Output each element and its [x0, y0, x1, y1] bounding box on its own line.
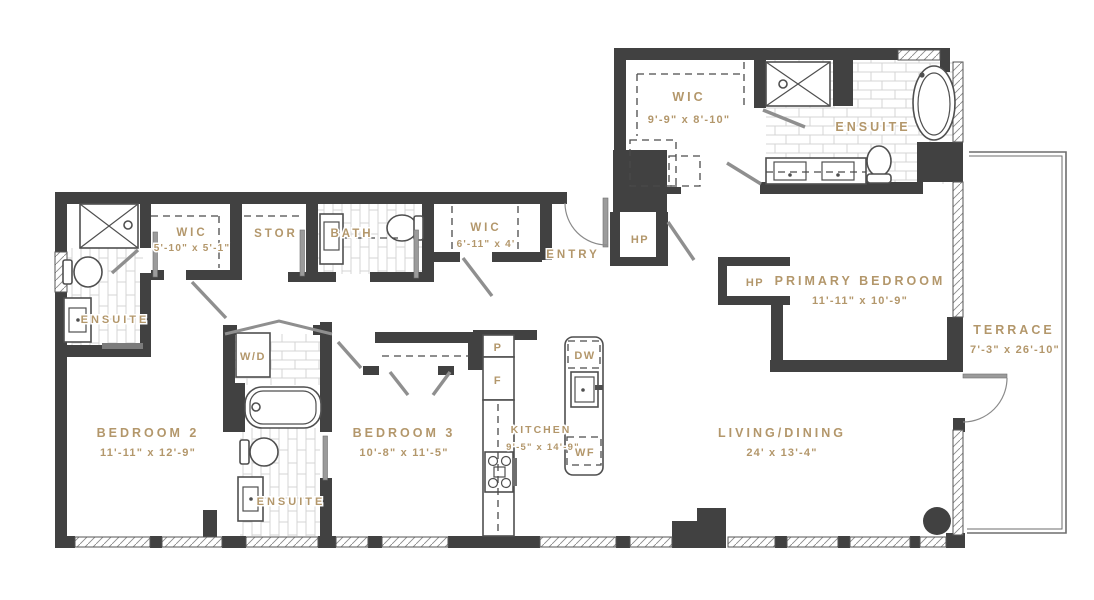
structural-column [923, 507, 951, 535]
window [382, 537, 448, 547]
bedroom3-closet-door [390, 372, 408, 395]
bathtub-icon [913, 66, 955, 140]
room-label-wic-entry: WIC [470, 222, 501, 234]
window [953, 182, 963, 317]
window [75, 537, 150, 547]
room-label-hp-bedroom: HP [746, 277, 764, 289]
room-label-terrace: TERRACE [973, 323, 1054, 337]
room-label-bedroom3: BEDROOM 3 [353, 426, 456, 440]
room-label-kitchen: KITCHEN [511, 424, 572, 436]
room-label-wic-hall: WIC [176, 227, 207, 239]
window [850, 537, 910, 547]
room-label-left-ensuite: ENSUITE [81, 314, 150, 326]
room-label-laundry: W/D [240, 351, 266, 363]
floor-plan-page: WIC 9'-9" x 8'-10" ENSUITE WIC 5'-10" x … [0, 0, 1094, 600]
window [787, 537, 838, 547]
room-dims-wic-primary: 9'-9" x 8'-10" [648, 114, 731, 126]
bathtub-icon [245, 387, 321, 428]
room-label-primary-bedroom: PRIMARY BEDROOM [775, 274, 946, 288]
room-label-hp-entry: HP [631, 234, 649, 246]
terrace-outline [967, 152, 1066, 533]
window [540, 537, 616, 547]
primary-bedroom-door [727, 163, 761, 184]
door-leaf [153, 232, 158, 277]
toilet-icon [867, 146, 891, 183]
room-label-primary-ensuite: ENSUITE [835, 120, 910, 134]
room-label-entry: ENTRY [546, 249, 600, 261]
room-dims-wic-entry: 6'-11" x 4' [457, 239, 516, 250]
room-dims-wic-hall: 5'-10" x 5'-1" [154, 243, 231, 254]
bath-mat [102, 343, 143, 349]
floor-plan-drawing: WIC 9'-9" x 8'-10" ENSUITE WIC 5'-10" x … [0, 0, 1094, 600]
room-dims-living-dining: 24' x 13'-4" [746, 447, 817, 459]
structural-pillar [672, 508, 726, 548]
room-label-bedroom2: BEDROOM 2 [97, 426, 200, 440]
door-leaf [414, 230, 419, 278]
appliance-label-pantry: P [494, 342, 503, 354]
room-dims-bedroom3: 10'-8" x 11'-5" [359, 447, 448, 459]
room-dims-kitchen: 9'-5" x 14'-9" [506, 442, 580, 453]
room-dims-primary-bedroom: 11'-11" x 10'-9" [812, 295, 908, 307]
window [728, 537, 775, 547]
window [162, 537, 222, 547]
toilet-icon [63, 257, 102, 287]
window [953, 430, 963, 535]
hp-closet-door [668, 222, 694, 260]
sink-icon [571, 372, 603, 407]
window [336, 537, 368, 547]
window [898, 50, 940, 60]
toilet-icon [240, 438, 278, 466]
window [920, 537, 946, 547]
shower-icon [766, 62, 830, 106]
door-leaf [323, 436, 328, 480]
appliance-label-wine-fridge: WF [575, 447, 595, 459]
bedroom3-door [338, 342, 361, 368]
terrace-door [963, 374, 1007, 422]
room-dims-terrace: 7'-3" x 26'-10" [970, 344, 1060, 356]
window [630, 537, 672, 547]
room-label-bedroom2-ensuite: ENSUITE [257, 496, 326, 508]
door-leaf [300, 230, 305, 276]
bedroom2-door [192, 282, 226, 318]
shower-icon [80, 204, 138, 248]
entry-door [565, 198, 608, 247]
room-label-wic-primary: WIC [672, 90, 705, 104]
room-label-storage: STOR [254, 228, 298, 240]
room-dims-bedroom2: 11'-11" x 12'-9" [100, 447, 196, 459]
room-label-living-dining: LIVING/DINING [718, 426, 846, 440]
window [246, 537, 318, 547]
stove-icon [485, 452, 517, 492]
room-label-bath: BATH [330, 228, 373, 240]
appliance-label-dishwasher: DW [574, 350, 595, 362]
bedroom3-closet-door [433, 372, 450, 395]
double-vanity-icon [766, 158, 866, 184]
hall-wic-door [463, 258, 492, 296]
appliance-label-fridge: F [494, 375, 502, 387]
